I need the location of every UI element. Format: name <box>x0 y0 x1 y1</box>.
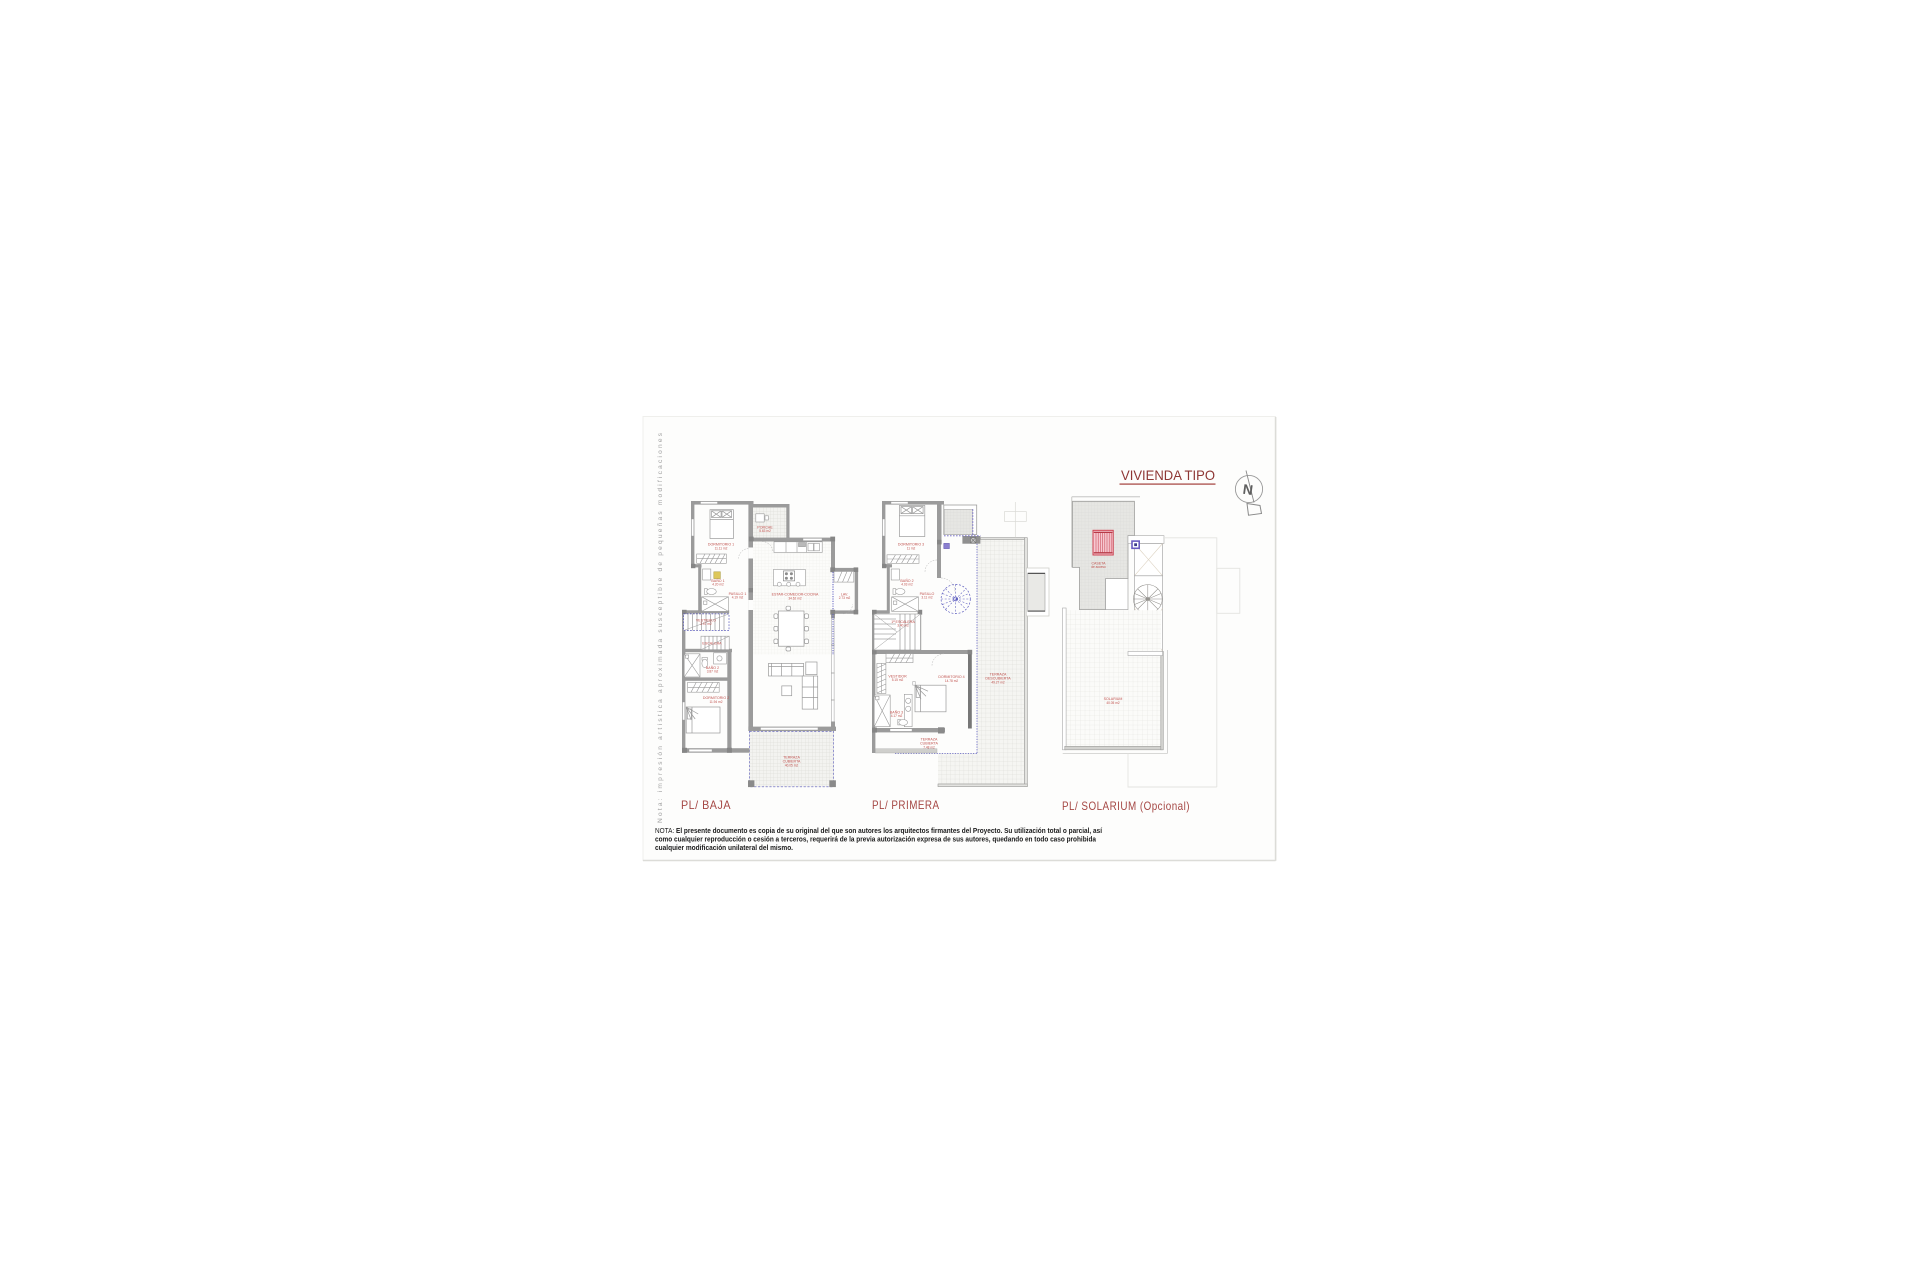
svg-text:14.78 m2: 14.78 m2 <box>945 679 959 683</box>
svg-text:11 m2: 11 m2 <box>907 547 916 551</box>
svg-text:40.05 m2: 40.05 m2 <box>785 764 799 768</box>
svg-text:5.15 m2: 5.15 m2 <box>892 678 904 682</box>
svg-text:49.27 m2: 49.27 m2 <box>991 681 1005 685</box>
svg-text:ESCALERA: ESCALERA <box>702 642 722 646</box>
svg-text:PL/ BAJA: PL/ BAJA <box>681 799 731 812</box>
svg-text:4.20 m2: 4.20 m2 <box>712 583 724 587</box>
svg-text:40.05 m2: 40.05 m2 <box>1106 701 1120 705</box>
svg-text:3.97 m2: 3.97 m2 <box>700 622 712 626</box>
svg-text:4.19 m2: 4.19 m2 <box>732 596 744 600</box>
svg-text:de acceso: de acceso <box>1091 565 1106 569</box>
svg-text:VIVIENDA TIPO: VIVIENDA TIPO <box>1121 467 1215 483</box>
svg-text:34.62 m2: 34.62 m2 <box>788 597 802 601</box>
svg-text:11.94 m2: 11.94 m2 <box>709 700 722 704</box>
svg-text:5.63 m2: 5.63 m2 <box>759 529 771 533</box>
svg-text:4.03 m2: 4.03 m2 <box>901 583 913 587</box>
svg-text:4.17 m2: 4.17 m2 <box>891 714 903 718</box>
svg-text:2.73 m2: 2.73 m2 <box>839 596 851 600</box>
svg-text:7.48 m2: 7.48 m2 <box>923 745 935 749</box>
svg-text:PL/ SOLARIUM (Opcional): PL/ SOLARIUM (Opcional) <box>1062 800 1190 813</box>
svg-text:11.11 m2: 11.11 m2 <box>715 547 728 551</box>
svg-text:PL/ PRIMERA: PL/ PRIMERA <box>872 799 940 812</box>
svg-text:Nota: impresión artística apro: Nota: impresión artística aproximada sus… <box>657 432 664 823</box>
svg-text:cualquier modificación unilate: cualquier modificación unilateral del mi… <box>655 843 793 852</box>
svg-text:3.40 m2: 3.40 m2 <box>897 624 909 628</box>
svg-text:3.11 m2: 3.11 m2 <box>921 596 933 600</box>
svg-text:3.87 m2: 3.87 m2 <box>707 670 719 674</box>
